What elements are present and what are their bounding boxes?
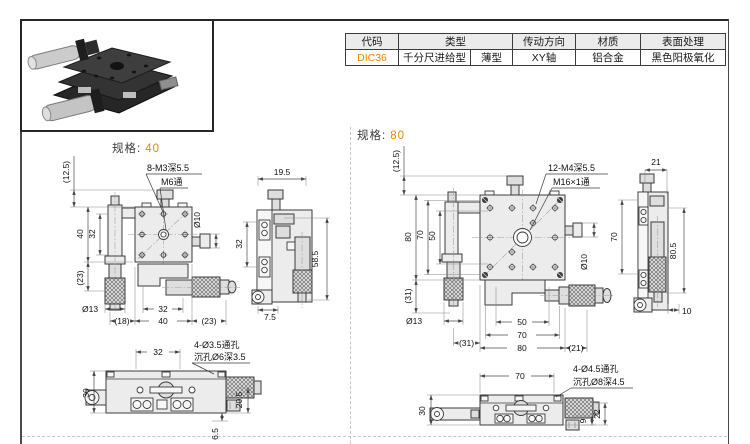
header-code: 代码 bbox=[346, 34, 399, 50]
callout-through-holes: 4-Ø3.5通孔 bbox=[194, 340, 240, 350]
bottom-arm bbox=[430, 408, 480, 421]
dim-right-ext: (23) bbox=[201, 316, 216, 326]
dim-height: 80 bbox=[403, 232, 413, 242]
stage-plate bbox=[128, 200, 200, 270]
dim-inner-width: 70 bbox=[517, 330, 527, 340]
spec-table: 代码 类型 传动方向 材质 表面处理 DIC36 千分尺进给型 薄型 XY轴 铝… bbox=[345, 33, 726, 66]
dim-inner-width: 32 bbox=[158, 304, 168, 314]
header-material: 材质 bbox=[576, 34, 641, 50]
side-clamp bbox=[192, 234, 210, 248]
header-direction: 传动方向 bbox=[513, 34, 576, 50]
dim-side-left: 70 bbox=[609, 232, 619, 242]
callout-through-holes: 4-Ø4.5通孔 bbox=[573, 364, 619, 374]
dim-bottom-width: 32 bbox=[153, 347, 163, 357]
spec40-side-view: 19.5 32 58.5 7.5 bbox=[232, 162, 337, 322]
dim-hole-height: 50 bbox=[427, 231, 437, 241]
catalog-page: 代码 类型 传动方向 材质 表面处理 DIC36 千分尺进给型 薄型 XY轴 铝… bbox=[0, 0, 750, 444]
dim-right-ext: (21) bbox=[568, 343, 583, 353]
y-axis-bracket bbox=[105, 196, 135, 264]
dim-bottom-offset: 6.5 bbox=[210, 428, 220, 440]
dim-side-dia: Ø10 bbox=[192, 212, 202, 228]
dim-side-dia: Ø10 bbox=[579, 254, 589, 270]
callout-center-thread: M16×1通 bbox=[553, 177, 590, 187]
dim-hole-width: 50 bbox=[517, 317, 527, 327]
dim-inner-height: 32 bbox=[87, 229, 97, 239]
callout-center-thread: M6通 bbox=[161, 177, 183, 187]
dim-bottom-height: 30 bbox=[417, 406, 427, 416]
header-type: 类型 bbox=[399, 34, 513, 50]
header-finish: 表面处理 bbox=[641, 34, 726, 50]
product-photo-box bbox=[20, 19, 214, 132]
x-axis-micrometer bbox=[540, 285, 615, 306]
side-lever bbox=[634, 298, 652, 312]
callout-counterbore: 沉孔Ø6深3.5 bbox=[194, 352, 246, 362]
dim-side-top: 21 bbox=[651, 157, 661, 167]
side-clamp bbox=[565, 223, 582, 237]
dim-side-left: 32 bbox=[234, 239, 244, 249]
dim-side-right: 80.5 bbox=[668, 242, 678, 259]
dim-bottom-right: 20.5 bbox=[234, 391, 244, 408]
x-axis-bracket bbox=[485, 280, 545, 305]
callout-mount-holes: 12-M4深5.5 bbox=[548, 163, 595, 173]
cell-type-sub: 薄型 bbox=[471, 50, 513, 66]
dim-top-offset: (12.5) bbox=[61, 161, 71, 183]
bottom-body bbox=[106, 371, 226, 413]
dim-width: 80 bbox=[517, 343, 527, 353]
spec80-side-view: 21 70 80.5 10 bbox=[612, 152, 724, 322]
dim-knob-dia: Ø13 bbox=[82, 304, 98, 314]
callout-mount-holes: 8-M3深5.5 bbox=[147, 163, 189, 173]
stage-plate bbox=[472, 190, 573, 286]
side-lever bbox=[252, 290, 272, 304]
spec-table-data-row: DIC36 千分尺进给型 薄型 XY轴 铝合金 黑色阳极氧化 bbox=[346, 50, 726, 66]
dim-side-top: 19.5 bbox=[274, 167, 291, 177]
page-border-right bbox=[728, 19, 730, 444]
spec40-bottom-view: 32 4-Ø3.5通孔 沉孔Ø6深3.5 30 20.5 6.5 bbox=[78, 338, 263, 442]
spec-table-header-row: 代码 类型 传动方向 材质 表面处理 bbox=[346, 34, 726, 50]
cell-finish: 黑色阳极氧化 bbox=[641, 50, 726, 66]
bottom-body bbox=[480, 395, 563, 425]
dim-side-bottom: 10 bbox=[682, 306, 692, 316]
dim-bottom-right: 22 bbox=[592, 409, 602, 419]
section-divider-dashed bbox=[350, 127, 351, 444]
dim-below: (31) bbox=[403, 288, 413, 303]
cell-type-main: 千分尺进给型 bbox=[399, 50, 471, 66]
dim-bottom-screw: 9 bbox=[578, 418, 588, 423]
dim-bottom-width: 70 bbox=[515, 371, 525, 381]
callout-counterbore: 沉孔Ø8深4.5 bbox=[573, 377, 625, 387]
spec80-bottom-view: 70 4-Ø4.5通孔 沉孔Ø8深4.5 30 9 22 bbox=[415, 362, 690, 442]
dim-height: 40 bbox=[75, 229, 85, 239]
dim-left-ext: (18) bbox=[114, 316, 129, 326]
cell-material: 铝合金 bbox=[576, 50, 641, 66]
dim-left-ext: (31) bbox=[459, 338, 474, 348]
dim-side-right: 58.5 bbox=[310, 250, 320, 267]
dim-inner-height: 70 bbox=[415, 230, 425, 240]
cell-code: DIC36 bbox=[346, 50, 399, 66]
dim-knob-dia: Ø13 bbox=[406, 316, 422, 326]
dim-top-offset: (12.5) bbox=[391, 150, 401, 172]
dim-bottom-height: 30 bbox=[81, 388, 91, 398]
y-axis-bracket bbox=[442, 192, 480, 262]
dim-side-bottom: 7.5 bbox=[264, 312, 276, 322]
dim-width: 40 bbox=[158, 316, 168, 326]
spec80-front-view: 12-M4深5.5 M16×1通 Ø10 (12.5) 80 70 50 (31… bbox=[390, 140, 630, 358]
x-axis-micrometer bbox=[162, 277, 240, 297]
product-photo bbox=[22, 21, 212, 130]
top-clamp-knob bbox=[507, 176, 523, 195]
cell-direction: XY轴 bbox=[513, 50, 576, 66]
spec80-label-text: 规格: bbox=[357, 130, 386, 142]
dim-below: (23) bbox=[75, 270, 85, 285]
